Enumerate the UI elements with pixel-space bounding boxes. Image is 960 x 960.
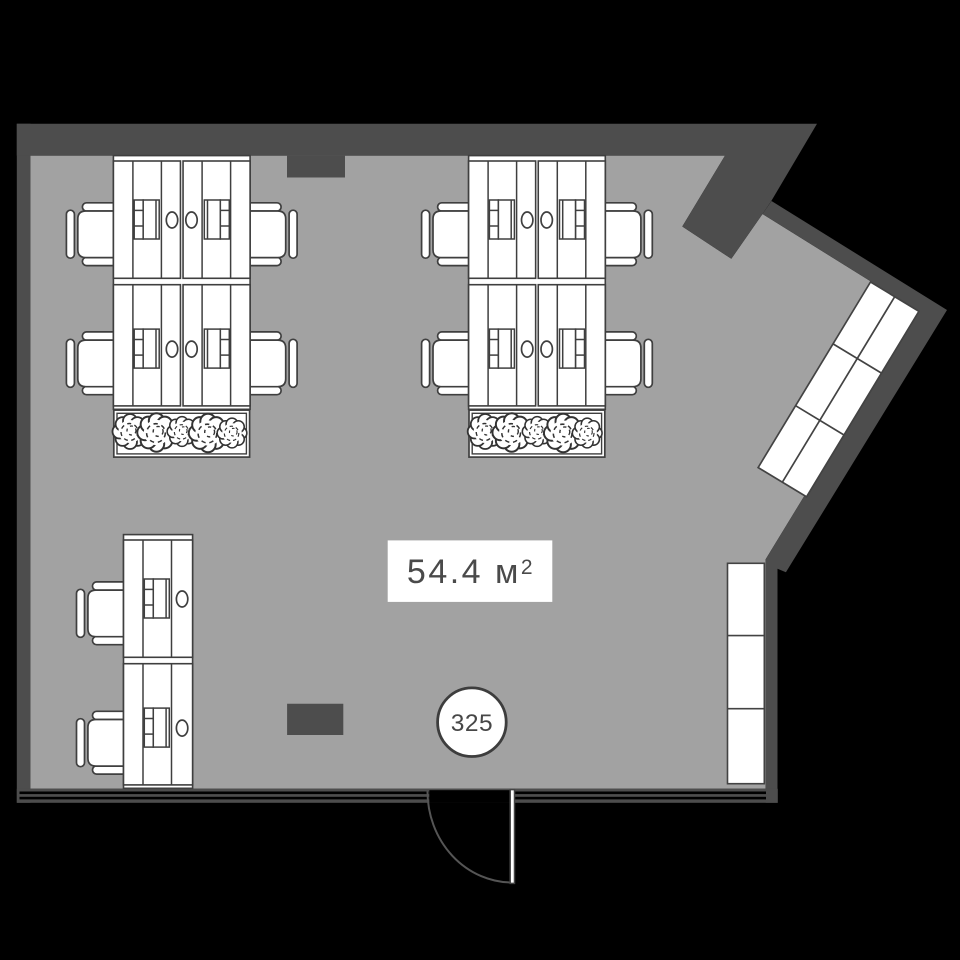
svg-text:54.4 м2: 54.4 м2 bbox=[407, 553, 535, 591]
svg-text:325: 325 bbox=[451, 710, 493, 737]
